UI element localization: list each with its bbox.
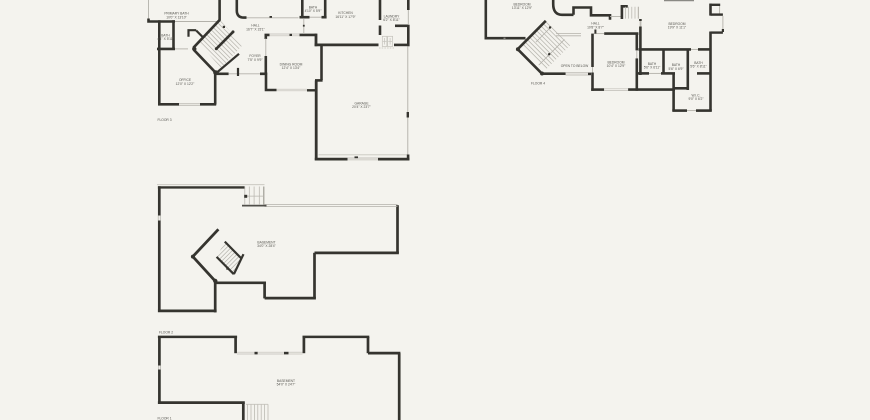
svg-text:10'0" X 13'10": 10'0" X 13'10"	[166, 16, 187, 20]
svg-text:12'4" X 13'4": 12'4" X 13'4"	[282, 66, 301, 70]
svg-text:20'4" X 23'7": 20'4" X 23'7"	[352, 105, 371, 109]
svg-text:6'2" X 8'11": 6'2" X 8'11"	[383, 18, 400, 22]
svg-text:34'0" X 28'4": 34'0" X 28'4"	[257, 244, 276, 248]
svg-text:4'10" X 5'9": 4'10" X 5'9"	[305, 9, 323, 13]
svg-text:9'0" X 6'2": 9'0" X 6'2"	[689, 97, 705, 101]
svg-text:19'9" X 11'1": 19'9" X 11'1"	[668, 26, 687, 30]
svg-text:FLOOR 4: FLOOR 4	[531, 81, 545, 85]
svg-text:7'5" X 9'9": 7'5" X 9'9"	[248, 58, 264, 62]
svg-text:16'7" X 15'1": 16'7" X 15'1"	[246, 27, 265, 31]
svg-text:54'0" X 24'7": 54'0" X 24'7"	[277, 383, 296, 387]
svg-text:FLOOR 2: FLOOR 2	[159, 331, 173, 335]
svg-text:12'0" X 12'2": 12'0" X 12'2"	[176, 82, 195, 86]
svg-text:16'11" X 17'9": 16'11" X 17'9"	[335, 15, 356, 19]
svg-text:FLOOR 3: FLOOR 3	[157, 118, 171, 122]
svg-text:5'6" X 6'9": 5'6" X 6'9"	[669, 67, 685, 71]
svg-text:10'8" X 8'7": 10'8" X 8'7"	[587, 25, 605, 29]
svg-text:4'1" X 5'11": 4'1" X 5'11"	[157, 37, 174, 41]
svg-text:10'4" X 12'9": 10'4" X 12'9"	[607, 64, 626, 68]
svg-text:OPEN TO BELOW: OPEN TO BELOW	[561, 64, 589, 68]
svg-text:13'11" X 12'9": 13'11" X 12'9"	[512, 6, 533, 10]
svg-text:5'6" X 6'11": 5'6" X 6'11"	[644, 66, 661, 70]
svg-text:5'6" X 8'11": 5'6" X 8'11"	[690, 65, 707, 69]
